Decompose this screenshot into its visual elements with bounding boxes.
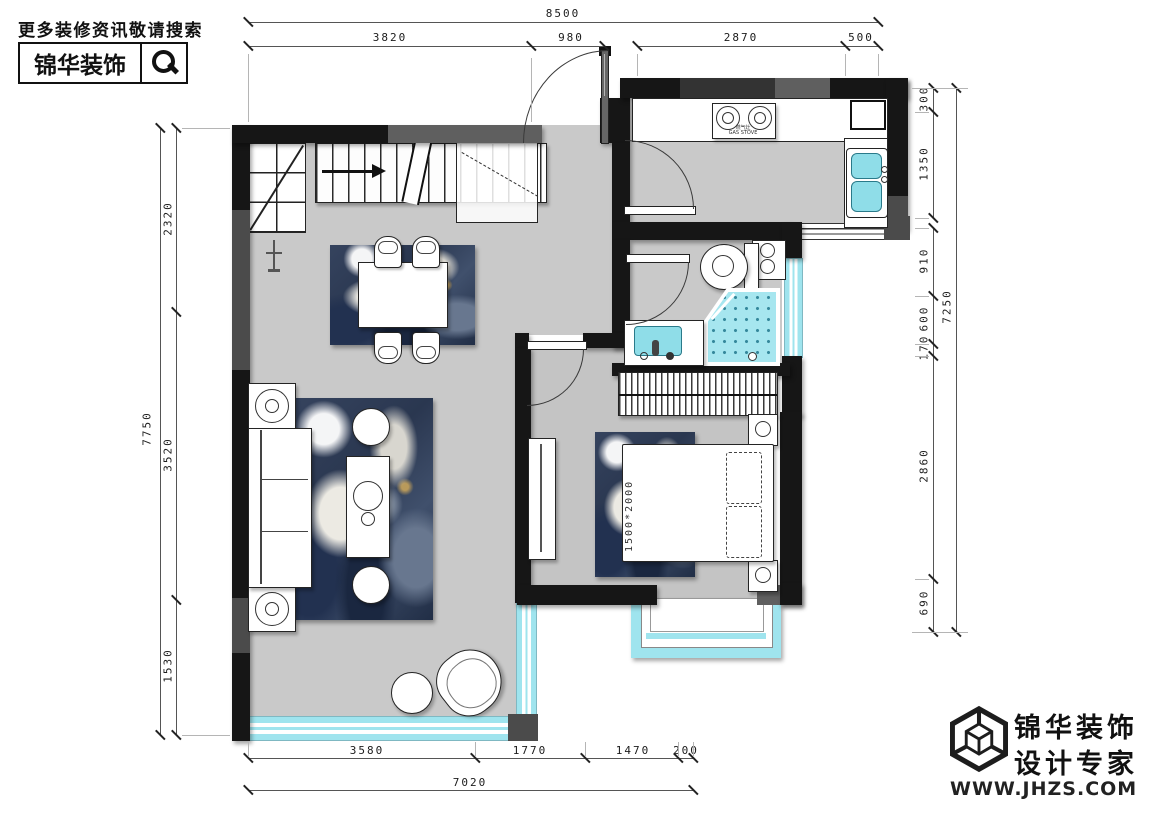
ext-line bbox=[878, 54, 879, 76]
dim-line-right-chain-1 bbox=[933, 88, 934, 218]
dim-left-seg2: 3520 bbox=[162, 420, 175, 490]
side-table-bottom-plant-core bbox=[265, 602, 279, 616]
ext-line bbox=[912, 632, 968, 633]
ext-line bbox=[604, 54, 605, 96]
entry-door-swing bbox=[523, 50, 609, 143]
dim-bottom-overall: 7020 bbox=[435, 776, 505, 789]
dim-line-top-overall bbox=[248, 22, 878, 23]
pouf-bottom bbox=[352, 566, 390, 604]
footer-brand-line2: 设计专家 bbox=[1014, 742, 1138, 781]
kitchen-corner-cabinet bbox=[850, 100, 886, 130]
magnifier-icon bbox=[142, 44, 186, 82]
cube-logo-svg bbox=[950, 702, 1008, 776]
vanity-dot-1 bbox=[640, 352, 648, 360]
dim-right-seg2: 1350 bbox=[918, 129, 931, 199]
dim-right-seg5: 170 bbox=[918, 313, 931, 383]
toilet-seat-inner bbox=[712, 255, 734, 277]
dim-bottom-seg4: 200 bbox=[651, 744, 721, 757]
ext-line bbox=[912, 88, 968, 89]
bed-pillow-bottom bbox=[726, 506, 762, 558]
ext-line bbox=[915, 344, 929, 345]
sofa-cushion-line-1 bbox=[262, 479, 308, 480]
ext-line bbox=[531, 58, 532, 122]
vanity-dot-2 bbox=[666, 352, 674, 360]
coffee-table-decor-small bbox=[361, 512, 375, 526]
bed-size-label: 1500*2000 bbox=[624, 452, 635, 552]
wall-west-gray-1 bbox=[232, 210, 250, 370]
ext-line bbox=[678, 742, 679, 756]
bath-shelf-roll-1 bbox=[760, 243, 775, 258]
sofa bbox=[248, 428, 312, 588]
ext-line bbox=[915, 356, 929, 357]
living-east-window bbox=[516, 600, 537, 720]
bath-shelf-roll-2 bbox=[760, 259, 775, 274]
wall-north-living-gray bbox=[388, 125, 542, 143]
ext-line bbox=[693, 742, 694, 756]
ext-line bbox=[915, 579, 929, 580]
magnifier-handle bbox=[167, 62, 179, 74]
ext-line bbox=[845, 54, 846, 76]
dim-left-seg1: 2320 bbox=[162, 184, 175, 254]
dim-line-top-chain-1 bbox=[248, 46, 605, 47]
stove-burner-left-inner bbox=[722, 112, 734, 124]
sink-bowl-upper bbox=[851, 153, 882, 179]
nightstand-bottom-lamp bbox=[755, 567, 771, 583]
sofa-back-line bbox=[260, 430, 262, 584]
stair-upper-flight-box bbox=[456, 141, 538, 223]
ext-line bbox=[915, 228, 929, 229]
dim-top-seg1: 3820 bbox=[355, 31, 425, 44]
bath-window bbox=[784, 258, 803, 358]
wall-bedroom-south-left bbox=[517, 585, 657, 605]
wall-kitchen-bath-divider bbox=[612, 222, 792, 240]
dim-line-right-overall bbox=[956, 88, 957, 632]
dim-bottom-seg1: 3580 bbox=[332, 744, 402, 757]
stair-direction-arrow bbox=[372, 164, 386, 178]
dim-line-right-chain-2 bbox=[933, 228, 934, 632]
dim-line-bottom-overall bbox=[248, 790, 693, 791]
floor-stand-arm bbox=[266, 252, 282, 254]
sink-faucet-dot-2 bbox=[881, 176, 888, 183]
pouf-top bbox=[352, 408, 390, 446]
dim-top-seg3: 2870 bbox=[706, 31, 776, 44]
dining-chair-4 bbox=[412, 332, 440, 364]
sink-faucet-dot-1 bbox=[881, 166, 888, 173]
dim-left-overall: 7750 bbox=[141, 394, 154, 464]
dim-line-bottom-chain bbox=[248, 758, 693, 759]
bedroom-cabinet-line bbox=[540, 444, 542, 552]
wall-north-kitchen-gray bbox=[775, 78, 830, 98]
stair-direction-line bbox=[322, 170, 374, 173]
ext-line bbox=[637, 54, 638, 76]
ext-line bbox=[915, 112, 929, 113]
ext-line bbox=[248, 54, 249, 122]
nightstand-top-lamp bbox=[755, 421, 771, 437]
bed-pillow-top bbox=[726, 452, 762, 504]
ext-line bbox=[248, 742, 249, 756]
sofa-cushion-line-2 bbox=[262, 531, 308, 532]
sink-bowl-lower bbox=[851, 181, 882, 212]
dining-chair-3 bbox=[374, 332, 402, 364]
vanity-faucet bbox=[652, 340, 659, 356]
dim-line-top-chain-2 bbox=[637, 46, 878, 47]
floor-stand-base bbox=[268, 269, 280, 272]
stove-label: 燃气灶 GAS STOVE bbox=[712, 126, 774, 136]
dim-top-seg2: 980 bbox=[536, 31, 606, 44]
header-brand-box: 锦华装饰 bbox=[18, 42, 188, 84]
header-brand-name: 锦华装饰 bbox=[20, 44, 142, 82]
side-table-top-plant-core bbox=[265, 399, 279, 413]
shower-drain bbox=[748, 352, 757, 361]
dim-line-left-chain bbox=[176, 128, 177, 735]
dim-right-seg6: 2860 bbox=[918, 431, 931, 501]
window-corner-pier bbox=[508, 714, 538, 741]
ext-line bbox=[915, 218, 929, 219]
dim-right-overall: 7250 bbox=[941, 272, 954, 342]
dining-chair-1 bbox=[374, 236, 402, 268]
wardrobe-hanging-rod bbox=[618, 372, 778, 416]
ext-line bbox=[915, 296, 929, 297]
cube-wireframe-logo bbox=[950, 702, 1008, 776]
footer-brand-line1: 锦华装饰 bbox=[1014, 706, 1138, 745]
wall-bedroom-south-corner bbox=[780, 583, 802, 605]
ext-line bbox=[585, 742, 586, 756]
header-tagline: 更多装修资讯敬请搜索 bbox=[18, 16, 203, 41]
footer-website: WWW.JHZS.COM bbox=[950, 778, 1142, 800]
bay-window-inner-sash bbox=[646, 633, 766, 639]
dining-table bbox=[358, 262, 448, 328]
bay-window-opening bbox=[650, 598, 764, 632]
dining-chair-2 bbox=[412, 236, 440, 268]
wall-bedroom-east bbox=[780, 412, 802, 605]
stove-label-en: GAS STOVE bbox=[729, 130, 758, 136]
dim-right-seg1: 300 bbox=[918, 64, 931, 134]
dim-bottom-seg2: 1770 bbox=[495, 744, 565, 757]
floor-stand-glyph bbox=[273, 240, 275, 270]
wall-north-kitchen-dark bbox=[680, 78, 775, 98]
dim-left-seg3: 1530 bbox=[162, 631, 175, 701]
dim-top-seg4: 500 bbox=[826, 31, 896, 44]
stove-burner-right-inner bbox=[754, 112, 766, 124]
ext-line bbox=[475, 742, 476, 756]
floor-plan-page: 更多装修资讯敬请搜索 锦华装饰 bbox=[0, 0, 1158, 818]
bedroom-cabinet bbox=[528, 438, 556, 560]
ext-line bbox=[182, 128, 230, 129]
wall-bedroom-north-right bbox=[583, 333, 630, 348]
coffee-table-decor bbox=[353, 481, 383, 511]
ext-line bbox=[182, 735, 230, 736]
round-side-table bbox=[391, 672, 433, 714]
dim-top-overall: 8500 bbox=[528, 7, 598, 20]
living-south-window bbox=[245, 716, 512, 741]
